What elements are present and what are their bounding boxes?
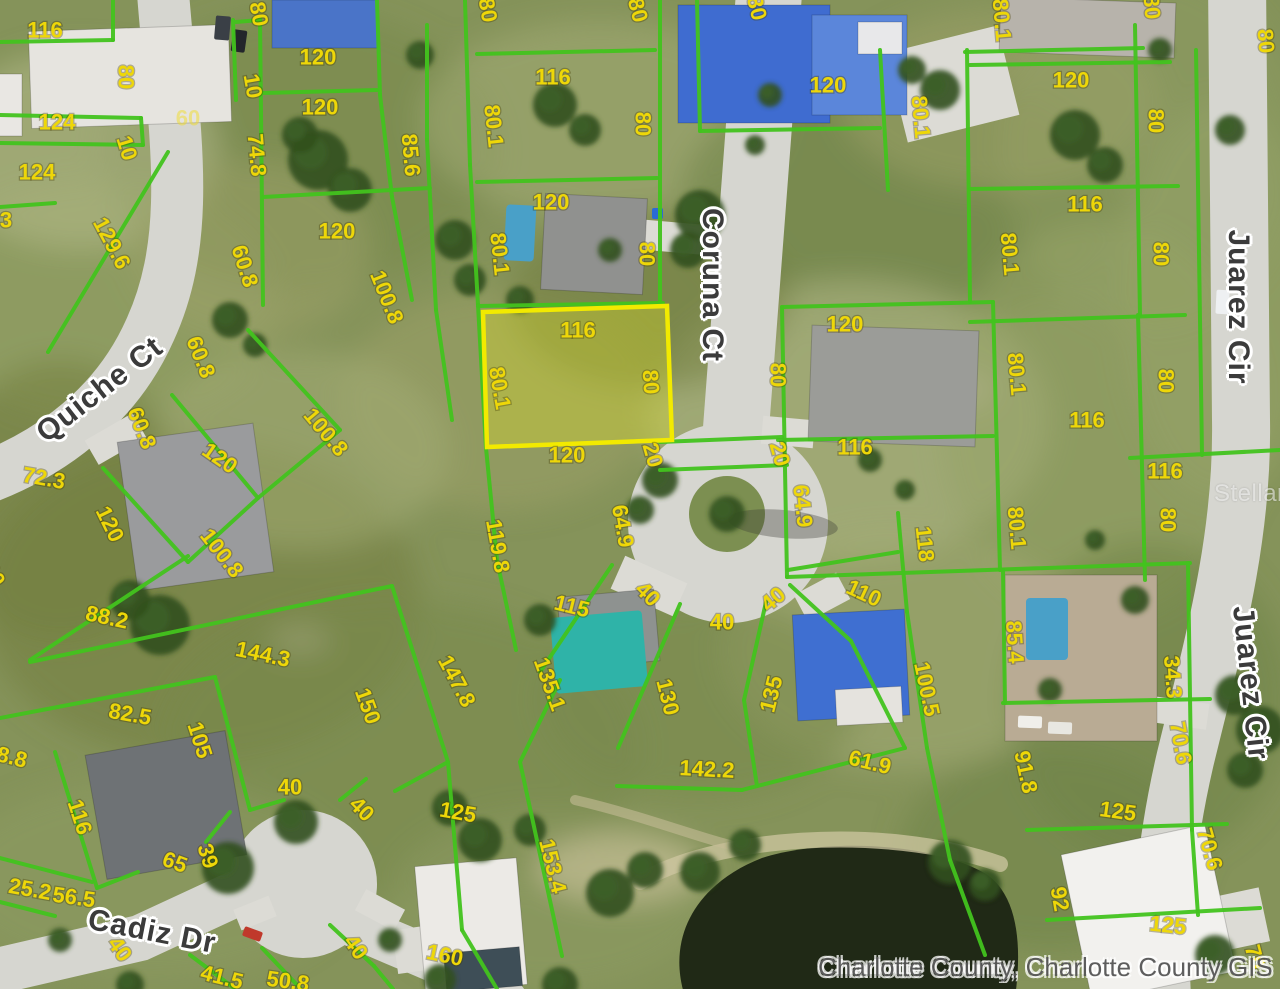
dimension-label: 80 — [1252, 28, 1279, 55]
tree-crown — [591, 874, 617, 900]
tree-crown — [278, 804, 302, 828]
dimension-label: 124 — [19, 160, 56, 185]
dimension-label: 80.1 — [479, 103, 508, 148]
tree-crown — [674, 236, 694, 256]
dimension-label: 118 — [911, 525, 940, 563]
dimension-label: 80 — [474, 0, 503, 24]
tree-crown — [631, 856, 651, 876]
dimension-label: 125 — [1148, 911, 1187, 940]
dimension-label: 74.8 — [243, 133, 272, 178]
dimension-label: 80.1 — [1003, 506, 1032, 551]
dimension-label: 120 — [319, 219, 356, 244]
tree-crown — [713, 500, 733, 520]
house-roof — [0, 74, 22, 136]
swimming-pool — [550, 610, 648, 694]
dimension-label: 60 — [176, 106, 200, 131]
watermark-attribution: Charlotte County, Charlotte County GIS — [818, 952, 1273, 983]
dimension-label: 80 — [1154, 369, 1179, 393]
tree-crown — [409, 44, 424, 59]
tree-crown — [901, 59, 916, 74]
tree-crown — [1040, 680, 1053, 693]
dimension-label: 85.4 — [1001, 620, 1029, 665]
dimension-label: 125 — [1098, 796, 1138, 826]
tree-crown — [380, 930, 393, 943]
dimension-label: 34.3 — [1159, 655, 1187, 699]
dimension-label: 142.2 — [679, 755, 735, 783]
tree-crown — [1218, 118, 1235, 135]
dimension-label: 80 — [1149, 242, 1174, 266]
dimension-label: 120 — [810, 73, 847, 98]
tree-crown — [527, 607, 545, 625]
tree-crown — [509, 289, 524, 304]
tree-crown — [537, 87, 561, 111]
tree-crown — [747, 137, 758, 148]
house-roof — [808, 325, 979, 447]
dimension-label: 120 — [533, 190, 570, 215]
tree-crown — [732, 832, 750, 850]
dimension-label: 80 — [631, 112, 656, 136]
tree-crown — [1124, 589, 1139, 604]
dimension-label: 116 — [1067, 192, 1103, 217]
dimension-label: 116 — [1147, 459, 1183, 484]
dimension-label: 116 — [535, 65, 571, 90]
tree-crown — [216, 306, 236, 326]
dimension-label: 80 — [638, 369, 665, 395]
tree-crown — [286, 121, 306, 141]
tree-crown — [600, 240, 613, 253]
car — [1048, 722, 1072, 735]
swimming-pool — [1026, 598, 1068, 660]
dimension-label: 116 — [560, 318, 596, 343]
tree-crown — [684, 856, 706, 878]
tree-crown — [1091, 151, 1111, 171]
car — [1018, 716, 1042, 729]
tree-crown — [1087, 532, 1098, 543]
tree-crown — [50, 930, 63, 943]
parcel-boundary-line — [141, 118, 143, 145]
tree-crown — [897, 482, 908, 493]
house-roof — [272, 0, 378, 48]
dimension-label: 120 — [1053, 68, 1090, 93]
dimension-label: 116 — [27, 18, 63, 43]
dimension-label: 80.1 — [1003, 352, 1032, 397]
dimension-label: 10 — [239, 72, 268, 100]
dimension-label: 85.6 — [397, 133, 426, 178]
dimension-label: 80 — [245, 0, 274, 28]
dimension-label: 80 — [1144, 109, 1169, 133]
dimension-label: 80.1 — [485, 231, 514, 276]
dimension-label: 120 — [302, 95, 339, 120]
dimension-label: 40 — [710, 610, 734, 635]
car — [214, 15, 231, 40]
parcel-map: 116808012412410106012012074.885.6129.612… — [0, 0, 1280, 989]
dimension-label: 80 — [1138, 0, 1165, 20]
dimension-label: 40 — [278, 775, 302, 800]
tree-crown — [572, 117, 590, 135]
dimension-label: 80.1 — [996, 232, 1025, 277]
dimension-label: 120 — [549, 443, 586, 468]
dimension-label: 64.9 — [788, 483, 817, 528]
tree-crown — [119, 974, 134, 989]
tree-crown — [1055, 115, 1083, 143]
street-label-juarez_top: Juarez Cir — [1221, 229, 1255, 384]
dimension-label: 80 — [1156, 508, 1181, 532]
street-label-coruna: Coruna Ct — [695, 208, 729, 362]
aerial-map-canvas: 116808012412410106012012074.885.6129.612… — [0, 0, 1280, 989]
dimension-label: 80.1 — [907, 95, 936, 140]
dimension-label: 80.1 — [988, 0, 1017, 42]
dimension-label: 120 — [827, 312, 864, 337]
dimension-label: 80 — [766, 363, 791, 387]
dimension-label: 116 — [837, 435, 873, 460]
dimension-label: 92 — [1046, 885, 1075, 913]
dimension-label: 3 — [0, 208, 12, 233]
tree-crown — [924, 74, 946, 96]
tree-crown — [760, 85, 773, 98]
tree-crown — [1150, 40, 1163, 53]
watermark-stellar-mls: StellarMLS — [1214, 480, 1280, 508]
dimension-label: 116 — [1069, 408, 1105, 433]
tree-crown — [972, 872, 990, 890]
tree-crown — [457, 267, 475, 285]
dimension-label: 124 — [39, 110, 76, 135]
dimension-label: 80 — [114, 65, 139, 89]
dimension-label: 120 — [300, 45, 337, 70]
tree-crown — [439, 224, 461, 246]
dimension-label: 80 — [635, 242, 660, 266]
tree-crown — [427, 967, 445, 985]
